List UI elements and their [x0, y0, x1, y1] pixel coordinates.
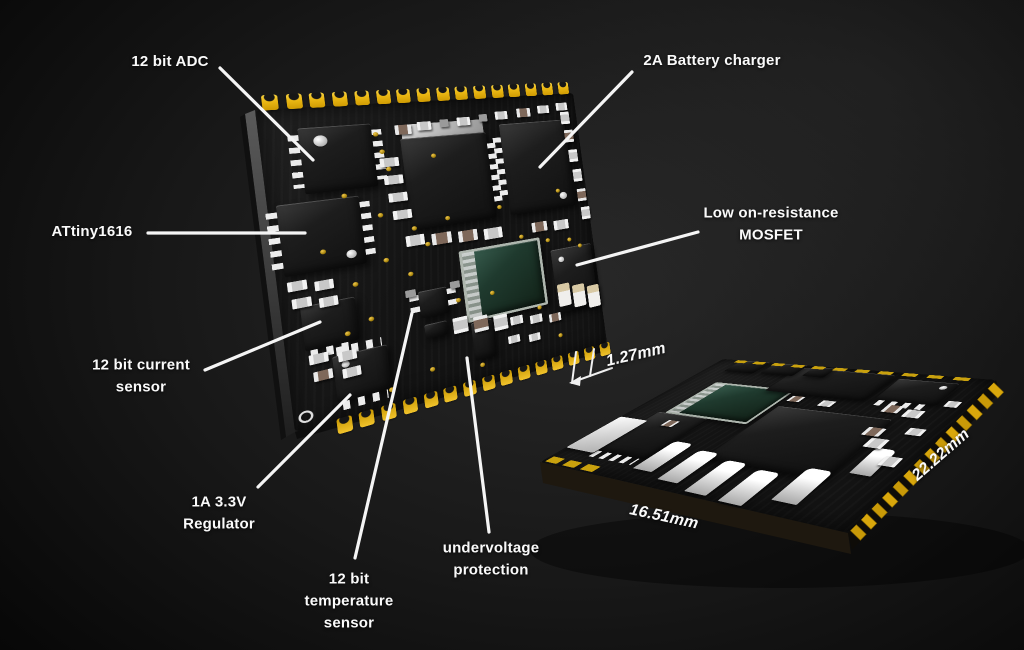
- dim-arrowhead: [569, 376, 581, 386]
- edge-pad: [580, 464, 601, 472]
- passive-component: [530, 313, 543, 324]
- main-pcb: [255, 93, 607, 432]
- passive-component: [287, 279, 308, 292]
- passive-component: [529, 332, 541, 342]
- callout-adc: 12 bit ADC: [131, 51, 208, 73]
- via-dot: [408, 271, 414, 276]
- passive-component: [516, 108, 531, 118]
- pcb-annotated-render: 12 bit ADC 2A Battery charger ATtiny1616…: [0, 0, 1024, 650]
- passive-component: [560, 112, 570, 125]
- passive-component: [904, 428, 927, 437]
- passive-component: [531, 221, 547, 233]
- chip-pins: [265, 213, 284, 272]
- via-dot: [519, 234, 524, 239]
- edge-pad: [545, 456, 565, 464]
- castellated-pin: [381, 402, 397, 421]
- castellated-pin: [354, 91, 370, 106]
- chip-pins: [371, 129, 387, 180]
- callout-temp-sensor: 12 bit temperature sensor: [305, 568, 394, 633]
- via-dot: [480, 362, 485, 368]
- edge-pad: [562, 460, 583, 468]
- chip-adc: [297, 124, 378, 195]
- chip-attiny1616: [276, 196, 367, 278]
- passive-component: [458, 229, 478, 243]
- castellated-pin: [285, 93, 303, 109]
- passive-component: [493, 313, 509, 331]
- castellated-pin: [375, 90, 391, 105]
- castellated-pin: [508, 84, 521, 97]
- castellated-pin: [482, 374, 496, 391]
- pin1-dot: [558, 256, 564, 263]
- passive-component: [817, 400, 837, 407]
- edge-pad: [901, 373, 919, 377]
- castellated-pin: [455, 86, 469, 100]
- castellated-pin: [436, 87, 450, 101]
- via-dot: [379, 149, 385, 154]
- castellated-pin: [535, 360, 548, 376]
- passive-component: [431, 231, 452, 245]
- castellated-pin: [423, 391, 438, 409]
- via-dot: [567, 237, 572, 242]
- via-dot: [412, 226, 418, 231]
- via-dot: [558, 333, 563, 338]
- pin1-dot: [559, 191, 567, 199]
- passive-component: [314, 279, 334, 292]
- passive-component: [394, 124, 412, 135]
- bond-pads: [670, 384, 726, 413]
- castellated-pin: [491, 85, 504, 98]
- via-dot: [389, 387, 395, 393]
- castellated-pin: [402, 397, 418, 415]
- dim-arrow-line: [573, 368, 612, 382]
- edge-pad: [952, 377, 971, 381]
- passive-component: [581, 206, 591, 220]
- dimension-board-width: 16.51mm: [627, 498, 700, 535]
- passive-component: [494, 111, 507, 120]
- castellated-pin: [568, 350, 580, 366]
- via-dot: [386, 167, 392, 172]
- castellated-pin: [359, 409, 376, 428]
- pin1-dot: [313, 135, 328, 147]
- castellated-pin: [557, 82, 569, 95]
- chip-temp-sensor: [418, 286, 450, 318]
- passive-component: [393, 209, 413, 220]
- castellated-pin: [396, 89, 411, 103]
- via-dot: [378, 213, 384, 218]
- chip-pins: [589, 451, 640, 465]
- castellated-pin: [473, 86, 487, 100]
- passive-component: [388, 192, 408, 203]
- via-dot: [352, 282, 358, 288]
- callout-battery-charger: 2A Battery charger: [643, 50, 780, 72]
- via-dot: [537, 305, 542, 310]
- passive-component: [577, 188, 587, 201]
- passive-component: [452, 315, 469, 334]
- chip-pins: [287, 135, 305, 189]
- passive-component: [549, 312, 562, 323]
- passive-component: [901, 409, 926, 418]
- castellated-pin: [500, 369, 514, 386]
- castellated-pin: [551, 355, 563, 371]
- pin1-dot: [346, 249, 357, 259]
- flat-pcb: [540, 359, 996, 533]
- lead-clip: [771, 468, 833, 505]
- edge-pad: [926, 375, 944, 379]
- passive-component: [483, 226, 503, 240]
- passive-component: [313, 368, 333, 382]
- callout-regulator: 1A 3.3V Regulator: [183, 491, 255, 535]
- passive-component: [568, 149, 578, 162]
- passive-component: [555, 102, 567, 110]
- passive-component: [564, 130, 574, 143]
- castellated-pin: [518, 364, 531, 381]
- castellated-pin: [332, 92, 349, 107]
- passive-component: [384, 174, 404, 185]
- chip-small: [424, 320, 448, 339]
- via-dot: [430, 366, 436, 372]
- callout-mcu: ATtiny1616: [52, 221, 133, 243]
- inductor: [587, 284, 601, 308]
- passive-component: [478, 114, 487, 122]
- dimension-pin-pitch: 1.27mm: [604, 337, 668, 373]
- passive-component: [439, 119, 449, 127]
- via-dot: [497, 205, 502, 210]
- chip-sensor-die: [458, 237, 548, 323]
- via-dot: [456, 298, 461, 303]
- chip-pins: [359, 201, 376, 256]
- chip-pins: [409, 295, 421, 318]
- mounting-hole: [298, 409, 314, 425]
- passive-component: [537, 105, 549, 113]
- passive-component: [417, 121, 432, 131]
- via-dot: [425, 241, 431, 246]
- castellated-pin: [541, 83, 553, 96]
- castellated-pin: [584, 346, 596, 361]
- castellated-pin: [416, 88, 431, 102]
- passive-component: [405, 234, 425, 248]
- callout-current-sensor: 12 bit current sensor: [92, 354, 190, 398]
- passive-component: [553, 219, 569, 231]
- via-dot: [383, 257, 389, 262]
- castellated-pin: [336, 415, 353, 435]
- passive-component: [450, 280, 461, 289]
- callout-mosfet: Low on-resistance MOSFET: [703, 202, 838, 246]
- callout-undervoltage: undervoltage protection: [443, 537, 540, 581]
- pin1-dot: [937, 386, 948, 390]
- castellated-pin: [309, 92, 326, 107]
- passive-component: [510, 314, 523, 325]
- via-dot: [545, 238, 550, 243]
- passive-component: [786, 396, 805, 403]
- castellated-pin: [463, 380, 477, 397]
- passive-component: [572, 169, 582, 182]
- passive-component: [456, 117, 470, 126]
- via-dot: [368, 316, 374, 322]
- bond-pads: [462, 251, 483, 320]
- passive-component: [943, 401, 962, 408]
- passive-component: [508, 334, 521, 344]
- castellated-pin: [261, 95, 279, 111]
- castellated-pin: [443, 385, 458, 403]
- flat-board-shadow: [530, 512, 1024, 588]
- castellated-pin: [525, 83, 537, 96]
